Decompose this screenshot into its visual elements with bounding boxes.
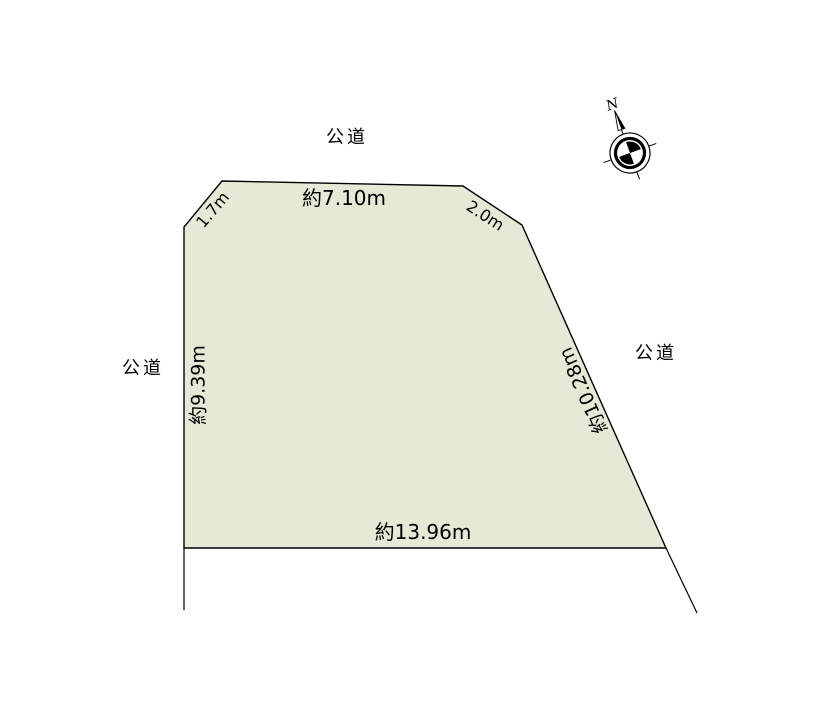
- land-plot-diagram: N 公道 公道 公道 約7.10m 1.7m 2.0m 約9.39m 約10.2…: [0, 0, 816, 716]
- label-road-right: 公道: [635, 345, 677, 363]
- measurement-left-edge: 約9.39m: [190, 345, 209, 425]
- parcel-shape: [184, 181, 666, 548]
- label-road-left: 公道: [122, 360, 164, 378]
- boundary-extension-right: [666, 548, 697, 613]
- compass: N: [584, 88, 666, 189]
- label-road-top: 公道: [326, 129, 368, 147]
- measurement-top-edge: 約7.10m: [302, 188, 386, 208]
- measurement-bottom-edge: 約13.96m: [375, 522, 472, 542]
- north-label: N: [603, 95, 622, 115]
